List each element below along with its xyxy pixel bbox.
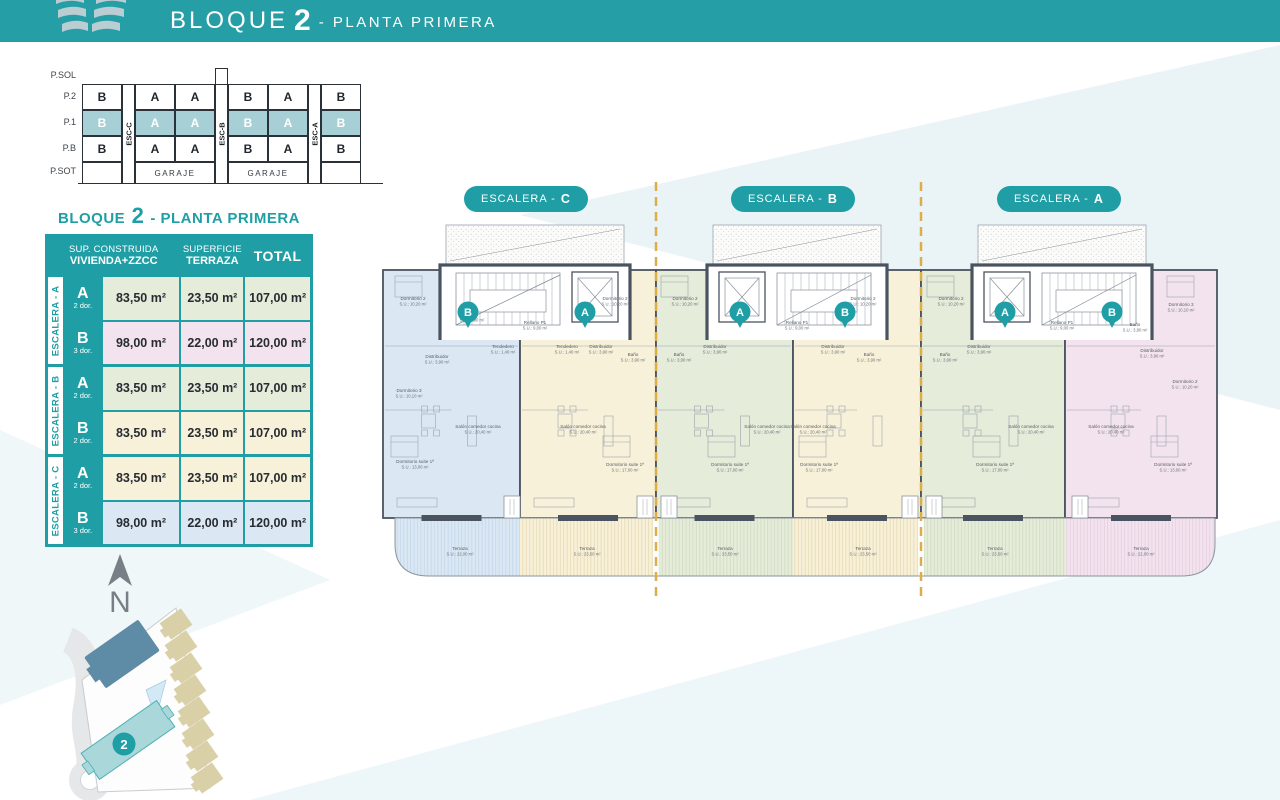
floor-label: P.B xyxy=(42,143,76,153)
total-value: 107,00 m² xyxy=(244,456,311,501)
garage-label: GARAJE xyxy=(135,162,215,184)
brand-logo-icon xyxy=(52,0,134,44)
room-label: Dormitorio 3S.U.: 10,10 m² xyxy=(1168,302,1196,313)
total-value: 107,00 m² xyxy=(244,411,311,456)
room-label: Rellano P1S.U.: 9,00 m² xyxy=(1050,320,1075,331)
terraces xyxy=(395,515,1215,576)
floor-label: P.1 xyxy=(42,117,76,127)
floor-label: P.SOT xyxy=(42,166,76,176)
escalera-b-label: ESCALERA - B xyxy=(47,366,65,456)
unit-pin-letter: A xyxy=(1001,307,1009,319)
unit-cell: B2 dor. xyxy=(64,411,101,456)
sup-value: 83,50 m² xyxy=(102,276,181,321)
room-label: DistribuidorS.U.: 3,90 m² xyxy=(589,344,614,355)
header-sup-construida: SUP. CONSTRUIDAVIVIENDA+ZZCC xyxy=(47,236,181,276)
section-cell-highlight: B xyxy=(82,110,122,136)
room-label: TendederoS.U.: 1,40 m² xyxy=(555,344,580,355)
block-2-badge-label: 2 xyxy=(120,737,127,752)
room-label: Dormitorio suite 1ªS.U.: 17,00 m² xyxy=(606,462,644,473)
unit-pin-letter: B xyxy=(464,307,472,319)
table-row: ESCALERA - B A2 dor. 83,50 m² 23,50 m² 1… xyxy=(47,366,312,411)
sup-value: 83,50 m² xyxy=(102,456,181,501)
room-label: DistribuidorS.U.: 3,90 m² xyxy=(425,354,450,365)
unit-cell: B3 dor. xyxy=(64,321,101,366)
room-label: Rellano P1S.U.: 9,00 m² xyxy=(785,320,810,331)
surfaces-panel: BLOQUE 2 - PLANTA PRIMERA SUP. CONSTRUID… xyxy=(45,203,313,547)
terraza-value: 23,50 m² xyxy=(180,366,244,411)
header-total: TOTAL xyxy=(244,236,311,276)
total-value: 107,00 m² xyxy=(244,276,311,321)
room-label: Dormitorio suite 1ªS.U.: 17,00 m² xyxy=(711,462,749,473)
total-value: 120,00 m² xyxy=(244,321,311,366)
room-label: Dormitorio 3S.U.: 10,10 m² xyxy=(396,388,424,399)
unit-cell: B3 dor. xyxy=(64,501,101,546)
header-bar: BLOQUE 2 - PLANTA PRIMERA xyxy=(0,0,1280,42)
section-cell: B xyxy=(228,84,268,110)
section-cell: B xyxy=(82,84,122,110)
section-cell: B xyxy=(321,84,361,110)
floor-label: P.2 xyxy=(42,91,76,101)
table-header-row: SUP. CONSTRUIDAVIVIENDA+ZZCC SUPERFICIET… xyxy=(47,236,312,276)
unit-cell: A2 dor. xyxy=(64,456,101,501)
sup-value: 98,00 m² xyxy=(102,501,181,546)
room-label: DistribuidorS.U.: 3,90 m² xyxy=(821,344,846,355)
section-esc-column: ESC-C xyxy=(122,84,135,184)
escalera-c-label: ESCALERA - C xyxy=(47,456,65,546)
section-cell: B xyxy=(228,136,268,162)
room-label: Dormitorio 2S.U.: 10,20 m² xyxy=(938,296,966,307)
floor-label: P.SOL xyxy=(42,70,76,80)
unit-pin-letter: B xyxy=(1108,307,1116,319)
pill-escalera-b: ESCALERA -B xyxy=(731,186,855,212)
room-label: DistribuidorS.U.: 3,90 m² xyxy=(1140,348,1165,359)
unit-pin-letter: B xyxy=(841,307,849,319)
unit-pin-letter: A xyxy=(736,307,744,319)
north-arrow-icon xyxy=(108,554,132,586)
page-title: BLOQUE 2 - PLANTA PRIMERA xyxy=(170,0,497,42)
section-esc-column: ESC-B xyxy=(215,84,228,184)
section-cell: A xyxy=(268,84,308,110)
site-map: N 2 xyxy=(40,548,340,800)
unit-cell: A2 dor. xyxy=(64,366,101,411)
room-label: Dormitorio 2S.U.: 10,20 m² xyxy=(672,296,700,307)
header-superficie-terraza: SUPERFICIETERRAZA xyxy=(180,236,244,276)
room-label: Dormitorio 2S.U.: 10,20 m² xyxy=(850,296,878,307)
room-label: Dormitorio 2S.U.: 10,20 m² xyxy=(1172,379,1200,390)
sup-value: 83,50 m² xyxy=(102,411,181,456)
table-row: ESCALERA - C A2 dor. 83,50 m² 23,50 m² 1… xyxy=(47,456,312,501)
room-label: Dormitorio 2S.U.: 10,20 m² xyxy=(602,296,630,307)
section-cell: A xyxy=(135,84,175,110)
section-empty-cell xyxy=(321,162,361,184)
terraza-value: 23,50 m² xyxy=(180,411,244,456)
terraza-value: 22,00 m² xyxy=(180,501,244,546)
surface-table: SUP. CONSTRUIDAVIVIENDA+ZZCC SUPERFICIET… xyxy=(45,234,313,547)
table-row: B3 dor. 98,00 m² 22,00 m² 120,00 m² xyxy=(47,321,312,366)
terraza-value: 22,00 m² xyxy=(180,321,244,366)
table-row: ESCALERA - A A2 dor. 83,50 m² 23,50 m² 1… xyxy=(47,276,312,321)
room-label: DistribuidorS.U.: 3,90 m² xyxy=(967,344,992,355)
sup-value: 83,50 m² xyxy=(102,366,181,411)
total-value: 107,00 m² xyxy=(244,366,311,411)
ground-line xyxy=(78,183,383,184)
room-label: Dormitorio 2S.U.: 10,20 m² xyxy=(400,296,428,307)
table-title: BLOQUE 2 - PLANTA PRIMERA xyxy=(45,203,313,229)
room-label: DistribuidorS.U.: 3,90 m² xyxy=(703,344,728,355)
title-suffix: - PLANTA PRIMERA xyxy=(319,14,497,31)
section-empty-cell xyxy=(82,162,122,184)
section-cell-highlight: A xyxy=(135,110,175,136)
garage-label: GARAJE xyxy=(228,162,308,184)
pill-escalera-a: ESCALERA -A xyxy=(997,186,1121,212)
sup-value: 98,00 m² xyxy=(102,321,181,366)
terraza-value: 23,50 m² xyxy=(180,456,244,501)
section-cell: A xyxy=(135,136,175,162)
room-label: TendederoS.U.: 1,40 m² xyxy=(491,344,516,355)
section-cell: B xyxy=(82,136,122,162)
section-cell: A xyxy=(175,84,215,110)
room-label: Dormitorio suite 1ªS.U.: 17,00 m² xyxy=(800,462,838,473)
section-cell-highlight: A xyxy=(175,110,215,136)
section-cell-highlight: B xyxy=(321,110,361,136)
unit-pin-letter: A xyxy=(581,307,589,319)
room-label: Dormitorio suite 1ªS.U.: 13,00 m² xyxy=(1154,462,1192,473)
section-cell: A xyxy=(268,136,308,162)
section-cell: A xyxy=(175,136,215,162)
building-section-diagram: P.SOL P.2 P.1 P.B P.SOT B A A B A B B A … xyxy=(42,66,392,191)
unit-cell: A2 dor. xyxy=(64,276,101,321)
section-cell: B xyxy=(321,136,361,162)
title-number: 2 xyxy=(294,4,311,38)
section-esc-column: ESC-A xyxy=(308,84,321,184)
stair-tower xyxy=(215,68,228,85)
room-label: Dormitorio suite 1ªS.U.: 17,00 m² xyxy=(976,462,1014,473)
north-label: N xyxy=(109,586,131,619)
terraza-value: 23,50 m² xyxy=(180,276,244,321)
table-row: B2 dor. 83,50 m² 23,50 m² 107,00 m² xyxy=(47,411,312,456)
room-label: Dormitorio suite 1ªS.U.: 13,00 m² xyxy=(396,459,434,470)
section-cell-highlight: A xyxy=(268,110,308,136)
pill-escalera-c: ESCALERA -C xyxy=(464,186,588,212)
table-row: B3 dor. 98,00 m² 22,00 m² 120,00 m² xyxy=(47,501,312,546)
floor-plan: Dormitorio 2S.U.: 10,20 m²BañoS.U.: 3,90… xyxy=(375,178,1237,602)
total-value: 120,00 m² xyxy=(244,501,311,546)
section-cell-highlight: B xyxy=(228,110,268,136)
room-label: Rellano P1S.U.: 9,00 m² xyxy=(523,320,548,331)
title-prefix: BLOQUE xyxy=(170,7,288,35)
escalera-a-label: ESCALERA - A xyxy=(47,276,65,366)
